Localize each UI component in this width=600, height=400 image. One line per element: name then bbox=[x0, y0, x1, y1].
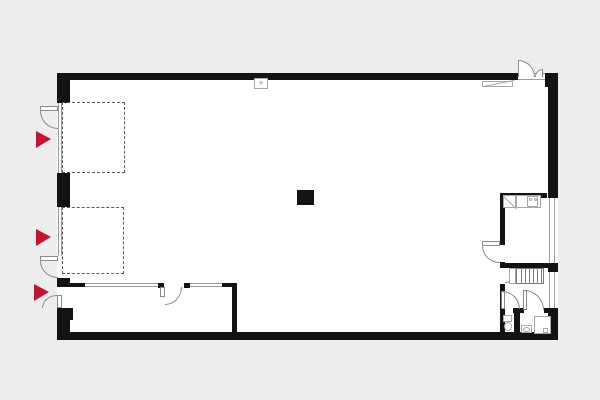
stair-riser bbox=[537, 269, 538, 283]
door-swing bbox=[40, 111, 58, 129]
interior-wall-room-side bbox=[232, 287, 237, 332]
interior-wall-room-left bbox=[57, 283, 85, 287]
glazed-partition bbox=[190, 283, 222, 287]
burner bbox=[529, 198, 532, 201]
panel-glyph: + bbox=[255, 79, 267, 88]
shower-drain bbox=[543, 328, 548, 333]
fixture-diagonal bbox=[483, 80, 514, 87]
window bbox=[549, 198, 555, 263]
washbasin-bowl bbox=[523, 327, 530, 332]
stair-riser bbox=[533, 269, 534, 283]
exterior-wall-left-seg1 bbox=[57, 73, 70, 103]
interior-wall-bath-top bbox=[544, 308, 558, 313]
interior-wall-bath-divider bbox=[514, 313, 520, 332]
window bbox=[549, 272, 555, 308]
exterior-wall-right-upper bbox=[548, 80, 558, 198]
loading-zone-1 bbox=[62, 102, 125, 173]
entrance-door-leaf-large bbox=[518, 60, 535, 77]
exterior-wall-left-seg4 bbox=[57, 308, 70, 338]
entry-marker-3 bbox=[34, 284, 49, 301]
staircase bbox=[516, 268, 544, 284]
stair-riser bbox=[521, 269, 522, 283]
floor-plan: + bbox=[0, 0, 600, 400]
toilet-cistern bbox=[503, 315, 512, 322]
ramp bbox=[482, 81, 513, 87]
door-swing bbox=[40, 261, 58, 278]
toilet-bowl bbox=[504, 322, 512, 331]
glazed-partition bbox=[85, 283, 158, 287]
stair-riser bbox=[529, 269, 530, 283]
entry-marker-2 bbox=[36, 229, 51, 246]
pilaster bbox=[70, 308, 73, 320]
stair-riser bbox=[541, 269, 542, 283]
kitchen-sink-unit bbox=[503, 195, 516, 208]
exterior-wall-top bbox=[57, 73, 518, 80]
panel: + bbox=[254, 78, 268, 89]
burner bbox=[534, 198, 537, 201]
building-floor bbox=[57, 73, 558, 340]
loading-zone-2 bbox=[62, 207, 124, 274]
entry-marker-1 bbox=[36, 131, 51, 148]
exterior-wall-left-seg2 bbox=[57, 173, 70, 207]
entrance-door-leaf-small bbox=[535, 69, 543, 77]
stair-riser bbox=[525, 269, 526, 283]
exterior-wall-right-mid bbox=[548, 263, 558, 272]
stair-landing bbox=[509, 268, 516, 284]
door-leaf bbox=[57, 295, 62, 308]
column bbox=[297, 190, 314, 205]
exterior-wall-bottom bbox=[57, 332, 558, 340]
fixture-diagonal bbox=[503, 196, 517, 210]
